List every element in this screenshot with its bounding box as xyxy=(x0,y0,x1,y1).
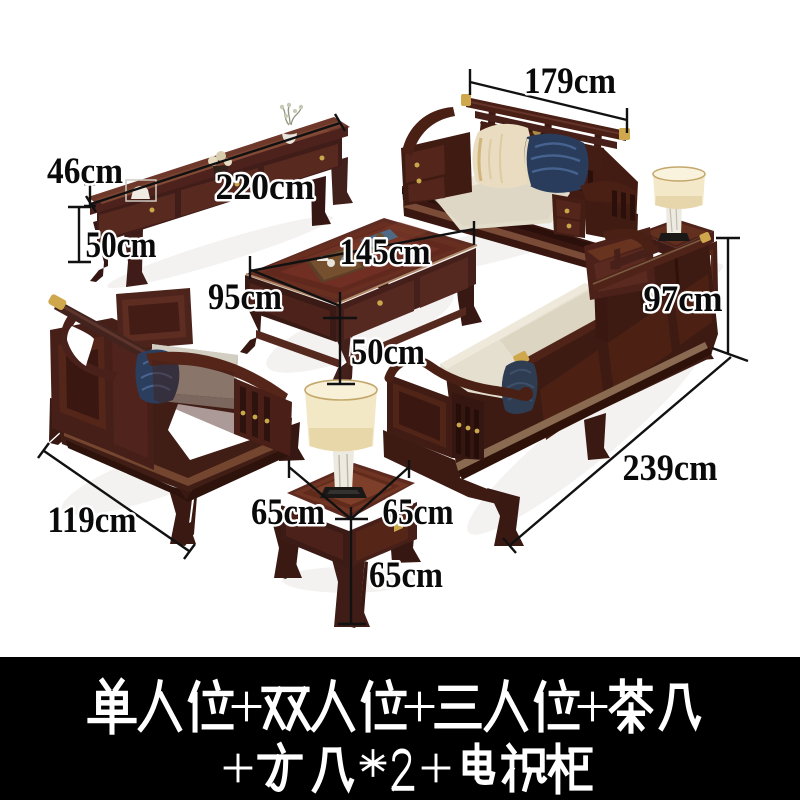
svg-text:46cm: 46cm xyxy=(47,151,123,192)
svg-text:50cm: 50cm xyxy=(86,225,157,266)
svg-text:145cm: 145cm xyxy=(340,232,431,273)
svg-text:220cm: 220cm xyxy=(216,167,315,208)
svg-text:179cm: 179cm xyxy=(524,61,616,102)
svg-text:50cm: 50cm xyxy=(351,332,425,373)
svg-text:95cm: 95cm xyxy=(208,277,282,318)
svg-text:65cm: 65cm xyxy=(369,555,443,596)
svg-text:119cm: 119cm xyxy=(48,500,137,541)
svg-text:65cm: 65cm xyxy=(383,492,454,533)
svg-text:97cm: 97cm xyxy=(644,279,723,320)
svg-text:239cm: 239cm xyxy=(623,448,718,489)
svg-text:65cm: 65cm xyxy=(251,492,325,533)
